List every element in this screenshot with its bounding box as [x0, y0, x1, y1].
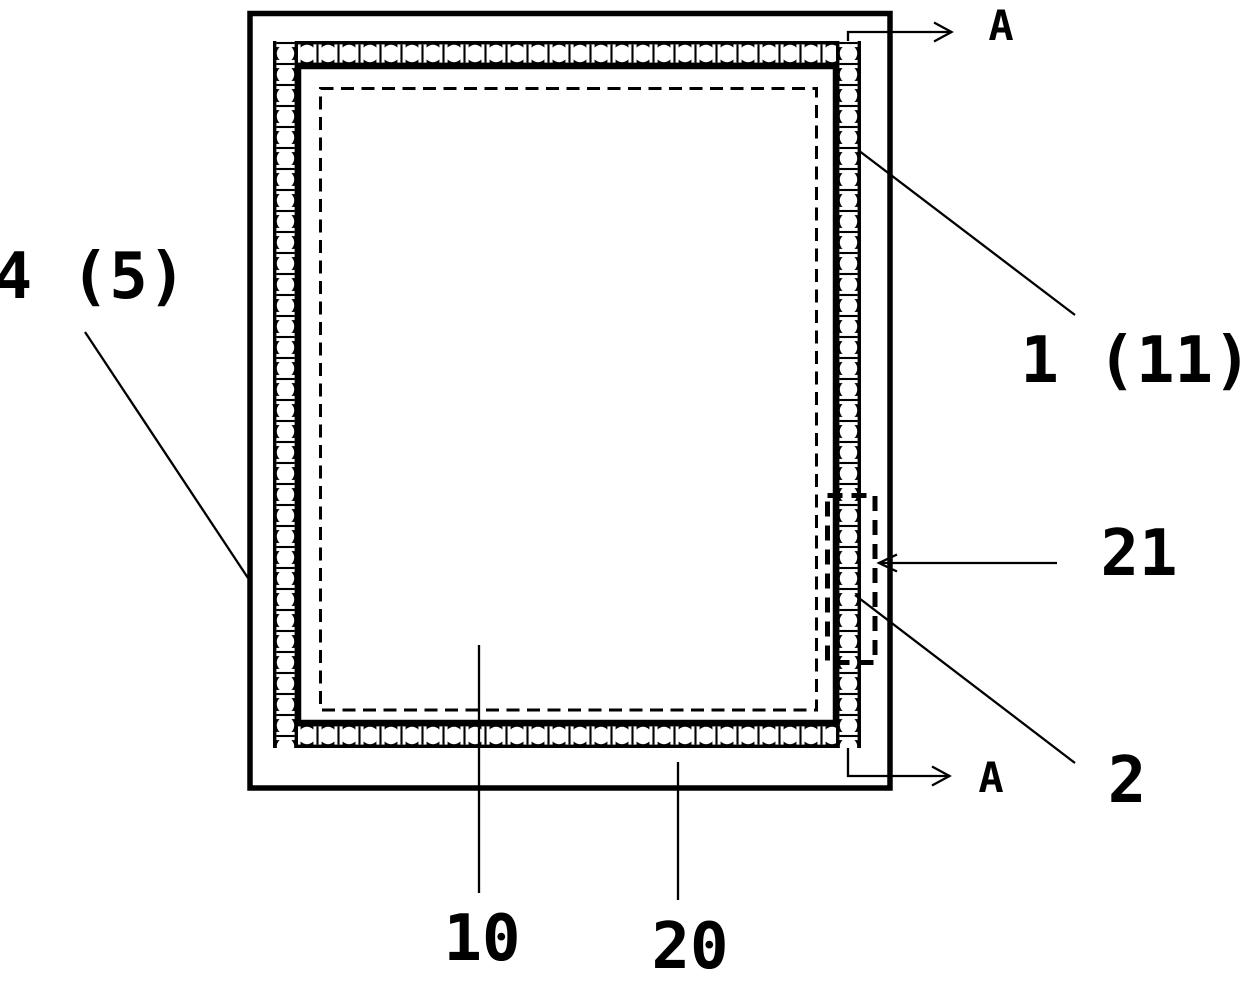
- outer-substrate-outline: [250, 14, 890, 789]
- sealant-band-right: [836, 41, 861, 748]
- sealant-band-bottom: [273, 723, 861, 748]
- callout-label-4-5: 4 (5): [0, 245, 186, 309]
- inner-frame-outline: [299, 67, 836, 723]
- section-marker-a-bottom: A: [978, 757, 1003, 799]
- section-marker-a-top: A: [988, 5, 1013, 47]
- callout-label-2: 2: [1108, 749, 1147, 813]
- callout-label-20: 20: [651, 915, 728, 979]
- callout-label-1-11: 1 (11): [1020, 329, 1240, 393]
- sealant-band-left: [273, 41, 298, 748]
- patent-figure: 4 (5) 1 (11) 21 2 10 20 A A: [0, 0, 1240, 983]
- patent-figure-drawing: [0, 0, 1240, 983]
- sealant-band-top: [273, 41, 861, 66]
- callout-label-21: 21: [1100, 522, 1177, 586]
- display-area-dashed-outline: [321, 89, 817, 711]
- callout-label-10: 10: [443, 907, 520, 971]
- leader-line-4-5: [85, 332, 248, 578]
